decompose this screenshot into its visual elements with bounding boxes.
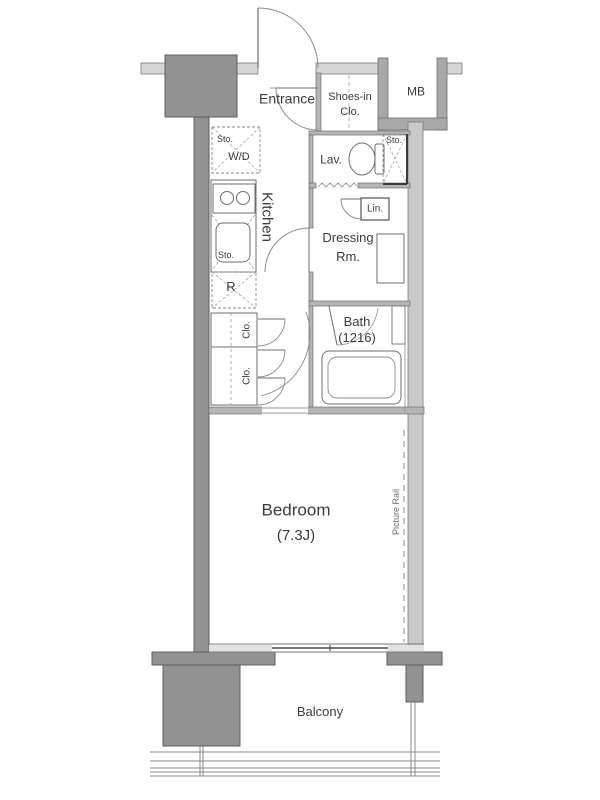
pillar-bottom-right bbox=[406, 665, 423, 702]
bath-label-1: Bath bbox=[344, 315, 371, 329]
wall-bath-top bbox=[309, 301, 410, 306]
closet-door-arc-1 bbox=[258, 319, 285, 346]
shoes-closet-label-1: Shoes-in bbox=[328, 91, 371, 103]
wall-top-mid-band bbox=[316, 63, 378, 74]
closet-door-arc-3 bbox=[258, 378, 285, 405]
wall-east bbox=[408, 122, 423, 652]
wall-top-right-band bbox=[447, 63, 462, 74]
shoes-closet-label-2: Clo. bbox=[340, 106, 360, 118]
bath-label-2: (1216) bbox=[338, 331, 376, 345]
drain-pipe-right bbox=[411, 702, 415, 776]
wd-storage-label: Sto. bbox=[217, 135, 233, 145]
railing-band bbox=[150, 768, 440, 776]
pillar-top-left bbox=[165, 55, 237, 117]
window-sill-right bbox=[388, 645, 424, 652]
kitchen-label: Kitchen bbox=[258, 192, 275, 242]
balcony-wall-left bbox=[152, 652, 275, 665]
refrigerator-label: R bbox=[226, 280, 235, 294]
wall-west bbox=[194, 117, 209, 652]
lav-storage-label: Sto. bbox=[386, 136, 402, 146]
vanity-unit bbox=[377, 234, 404, 283]
bedroom-label-2: (7.3J) bbox=[277, 528, 315, 545]
closet-upper-label: Clo. bbox=[242, 321, 253, 339]
meter-box-label: MB bbox=[407, 85, 425, 98]
picture-rail-label: Picture Rail bbox=[392, 489, 402, 535]
kitchen-storage-label: Sto. bbox=[218, 251, 234, 261]
closet-lower-label: Clo. bbox=[242, 367, 253, 385]
floor-plan-linework bbox=[0, 0, 600, 800]
entrance-label: Entrance bbox=[259, 91, 315, 106]
bath-counter bbox=[392, 306, 405, 344]
hall-door-arc bbox=[261, 312, 310, 396]
linen-door-arc bbox=[341, 199, 361, 219]
bathtub-inner bbox=[328, 357, 395, 398]
toilet-bowl bbox=[349, 143, 375, 175]
balcony-wall-right bbox=[387, 652, 442, 665]
bedroom-label-1: Bedroom bbox=[262, 502, 331, 521]
entrance-door-arc bbox=[258, 8, 318, 68]
bath-door-leaf bbox=[329, 306, 337, 345]
wall-bedroom-top bbox=[209, 407, 424, 414]
lav-accordion-door bbox=[318, 183, 357, 187]
wall-entrance-shoes bbox=[316, 73, 321, 133]
closet-door-arc-2 bbox=[258, 350, 285, 377]
floor-plan: Entrance Shoes-in Clo. MB Lav. Sto. Lin.… bbox=[0, 0, 600, 800]
washer-dryer-label: W/D bbox=[228, 151, 249, 163]
pillar-bottom-left bbox=[163, 665, 240, 746]
wall-corridor-1 bbox=[309, 135, 313, 183]
wall-corridor-2 bbox=[309, 188, 313, 228]
stove-unit bbox=[213, 184, 255, 213]
wall-lav-bottom-left bbox=[309, 183, 316, 188]
lavatory-label: Lav. bbox=[320, 153, 342, 166]
dressing-label-1: Dressing bbox=[322, 231, 373, 245]
balcony-label: Balcony bbox=[297, 705, 343, 719]
window-sill-left bbox=[209, 645, 272, 652]
linen-label: Lin. bbox=[367, 204, 383, 215]
dressing-label-2: Rm. bbox=[336, 250, 360, 264]
